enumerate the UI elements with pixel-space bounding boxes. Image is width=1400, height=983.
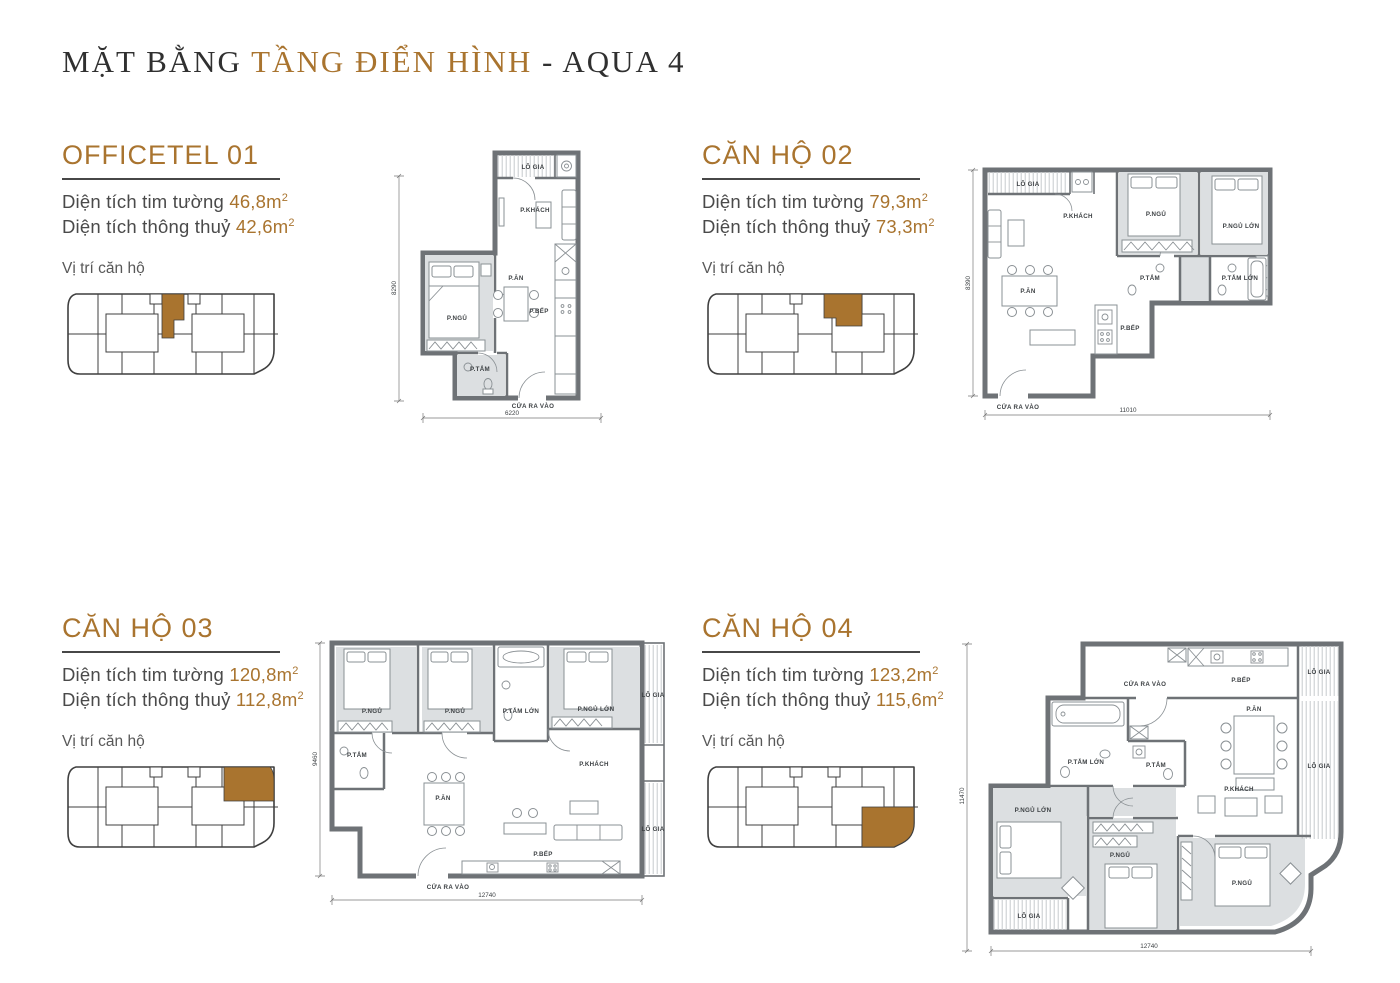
room-label: LÔ GIA (521, 163, 544, 171)
entrance-label: CỬA RA VÀO (427, 884, 469, 891)
room-label: LÔ GIA (1017, 912, 1040, 920)
entrance-label: CỬA RA VÀO (997, 404, 1039, 411)
room-label: P.ĂN (1020, 288, 1035, 295)
room-label: LÔ GIA (1016, 180, 1039, 188)
keyplan-highlight (224, 767, 274, 801)
underline (702, 651, 920, 653)
floorplan-can-ho-03: P.NGỦ P.NGỦ P.TẮM LỚN P.NGỦ LỚN LÔ GIA L… (312, 633, 692, 913)
underline (62, 178, 280, 180)
unit-name: CĂN HỘ 03 (62, 613, 342, 644)
floorplan-can-ho-04: CỬA RA VÀO P.BẾP LÔ GIA P.ĂN P.TẮM LỚN P… (953, 636, 1348, 966)
brochure-page: MẶT BẰNG TẦNG ĐIỂN HÌNH - AQUA 4 OFFICET… (0, 0, 1400, 983)
room-label: LÔ GIA (641, 691, 664, 699)
title-accent: TẦNG ĐIỂN HÌNH (251, 44, 532, 79)
dim-height: 9460 (312, 752, 319, 767)
room-label: P.TẮM LỚN (1068, 758, 1105, 766)
unit-card-can-ho-03: CĂN HỘ 03 Diện tích tim tường 120,8m2 Di… (62, 613, 342, 858)
keyplan-can-ho-04 (702, 761, 928, 853)
room-label: P.BẾP (529, 308, 548, 315)
keyplan-can-ho-02 (702, 288, 928, 380)
room-label: P.KHÁCH (1224, 786, 1254, 793)
underline (62, 651, 280, 653)
floorplan-can-ho-02: LÔ GIA P.KHÁCH P.NGỦ P.NGỦ LỚN P.ĂN P.TẮ… (960, 158, 1300, 428)
area-thong-thuy: Diện tích thông thuỷ 42,6m2 (62, 216, 342, 238)
dim-width: 12740 (1140, 943, 1158, 950)
underline (702, 178, 920, 180)
room-label: LÔ GIA (1307, 762, 1330, 770)
room-label: P.NGỦ (1110, 852, 1131, 859)
floorplan-officetel-01: LÔ GIA P.KHÁCH P.NGỦ P.ĂN P.BẾP P.TẮM CỬ… (385, 146, 620, 431)
room-label: P.NGỦ (447, 315, 468, 322)
dim-width: 6220 (505, 410, 520, 417)
title-suffix: - AQUA 4 (542, 44, 685, 79)
room-label: P.KHÁCH (1063, 213, 1093, 220)
room-label: P.NGỦ LỚN (1223, 222, 1260, 230)
unit-card-can-ho-04: CĂN HỘ 04 Diện tích tim tường 123,2m2 Di… (702, 613, 982, 858)
unit-card-officetel-01: OFFICETEL 01 Diện tích tim tường 46,8m2 … (62, 140, 342, 385)
room-label: P.TẮM (470, 365, 490, 373)
room-label: P.TẮM (1146, 761, 1166, 769)
area-tim-tuong: Diện tích tim tường 46,8m2 (62, 191, 342, 213)
room-label: P.NGỦ (1146, 211, 1167, 218)
unit-name: OFFICETEL 01 (62, 140, 342, 171)
room-label: P.TẮM (347, 751, 367, 759)
unit-card-can-ho-02: CĂN HỘ 02 Diện tích tim tường 79,3m2 Diệ… (702, 140, 982, 385)
entrance-label: CỬA RA VÀO (512, 403, 554, 410)
room-label: P.TẮM LỚN (1222, 274, 1259, 282)
keyplan-caption: Vị trí căn hộ (62, 733, 342, 751)
room-label: P.KHÁCH (579, 761, 609, 768)
area-tim-tuong: Diện tích tim tường 120,8m2 (62, 664, 342, 686)
title-prefix: MẶT BẰNG (62, 44, 242, 79)
keyplan-caption: Vị trí căn hộ (702, 260, 982, 278)
room-label: P.KHÁCH (520, 207, 550, 214)
room-label: P.BẾP (533, 851, 552, 858)
room-label: P.NGỦ (362, 708, 383, 715)
keyplan-caption: Vị trí căn hộ (62, 260, 342, 278)
room-label: P.BẾP (1120, 325, 1139, 332)
keyplan-officetel-01 (62, 288, 288, 380)
room-label: P.NGỦ LỚN (1015, 806, 1052, 814)
room-label: P.NGỦ (445, 708, 466, 715)
room-label: P.ĂN (435, 795, 450, 802)
area-tim-tuong: Diện tích tim tường 79,3m2 (702, 191, 982, 213)
area-thong-thuy: Diện tích thông thuỷ 112,8m2 (62, 689, 342, 711)
area-thong-thuy: Diện tích thông thuỷ 73,3m2 (702, 216, 982, 238)
dim-height: 8390 (965, 276, 972, 291)
dim-width: 11010 (1119, 407, 1137, 414)
area-thong-thuy: Diện tích thông thuỷ 115,6m2 (702, 689, 982, 711)
room-label: P.TẮM (1140, 274, 1160, 282)
room-label: LÔ GIA (1307, 668, 1330, 676)
dim-height: 8290 (391, 281, 398, 296)
room-label: P.NGỦ (1232, 880, 1253, 887)
room-label: P.ĂN (508, 275, 523, 282)
room-label: P.TẮM LỚN (503, 707, 540, 715)
room-label: P.ĂN (1246, 706, 1261, 713)
room-label: LÔ GIA (641, 825, 664, 833)
keyplan-caption: Vị trí căn hộ (702, 733, 982, 751)
page-title: MẶT BẰNG TẦNG ĐIỂN HÌNH - AQUA 4 (62, 44, 685, 80)
entrance-label: CỬA RA VÀO (1124, 681, 1166, 688)
dim-width: 12740 (478, 892, 496, 899)
unit-name: CĂN HỘ 02 (702, 140, 982, 171)
dim-height: 11470 (959, 787, 966, 805)
keyplan-can-ho-03 (62, 761, 288, 853)
unit-name: CĂN HỘ 04 (702, 613, 982, 644)
room-label: P.NGỦ LỚN (578, 705, 615, 713)
room-label: P.BẾP (1231, 677, 1250, 684)
area-tim-tuong: Diện tích tim tường 123,2m2 (702, 664, 982, 686)
